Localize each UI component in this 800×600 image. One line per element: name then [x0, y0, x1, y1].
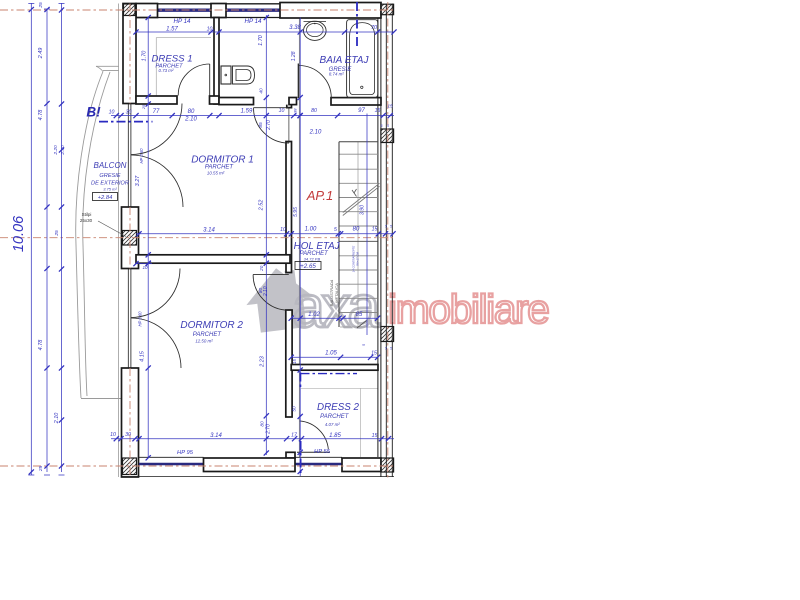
svg-text:2.10: 2.10: [184, 117, 197, 123]
svg-text:10.06: 10.06: [11, 215, 27, 252]
svg-text:5: 5: [390, 347, 392, 351]
svg-text:4.78: 4.78: [38, 339, 44, 351]
svg-text:15: 15: [292, 359, 297, 364]
svg-text:AP.1: AP.1: [306, 188, 334, 203]
svg-text:2.10: 2.10: [54, 412, 60, 425]
svg-text:8.74 m²: 8.74 m²: [329, 72, 344, 77]
svg-text:20: 20: [259, 265, 264, 272]
svg-text:HP 14: HP 14: [245, 18, 263, 25]
svg-text:12.50 m²: 12.50 m²: [195, 339, 213, 344]
svg-text:4.15: 4.15: [140, 350, 146, 362]
svg-text:15: 15: [372, 433, 378, 439]
svg-text:HP 0.60: HP 0.60: [139, 148, 144, 164]
svg-text:HP 95: HP 95: [177, 450, 194, 456]
svg-text:25: 25: [38, 466, 44, 473]
svg-text:HP 55: HP 55: [314, 449, 331, 455]
svg-text:3.75 m²: 3.75 m²: [103, 187, 117, 192]
svg-text:1.02: 1.02: [308, 312, 320, 318]
svg-text:2.70: 2.70: [266, 120, 272, 131]
svg-text:2.23: 2.23: [260, 355, 266, 368]
svg-text:DRESS 2: DRESS 2: [317, 402, 359, 413]
svg-text:34.72 PB: 34.72 PB: [304, 256, 321, 261]
svg-text:5: 5: [385, 225, 387, 229]
svg-text:85: 85: [258, 122, 264, 128]
svg-text:15: 15: [375, 108, 381, 114]
svg-text:2.10: 2.10: [263, 286, 269, 297]
svg-text:1.38: 1.38: [292, 108, 297, 117]
svg-text:97: 97: [358, 108, 365, 114]
svg-text:85: 85: [356, 312, 363, 318]
svg-text:1.57: 1.57: [166, 26, 178, 32]
svg-text:5: 5: [385, 347, 387, 351]
svg-text:+2.84: +2.84: [98, 195, 113, 201]
svg-text:Stilpi: Stilpi: [82, 212, 92, 217]
svg-text:PARCHET: PARCHET: [193, 332, 223, 338]
svg-text:1.05: 1.05: [325, 351, 337, 357]
svg-text:3.14: 3.14: [203, 228, 215, 234]
svg-text:METALICA: METALICA: [334, 283, 339, 303]
svg-text:HP 0.60: HP 0.60: [138, 311, 143, 327]
svg-text:10: 10: [142, 265, 148, 270]
svg-text:4.07 m²: 4.07 m²: [325, 422, 340, 427]
svg-text:70: 70: [371, 25, 378, 31]
svg-text:10: 10: [109, 110, 115, 116]
svg-text:30: 30: [125, 432, 131, 438]
svg-text:25: 25: [38, 2, 44, 9]
svg-text:2.40: 2.40: [60, 145, 66, 156]
svg-text:40: 40: [259, 88, 265, 94]
svg-text:3.14: 3.14: [210, 433, 222, 439]
svg-text:50: 50: [291, 406, 297, 412]
svg-text:5: 5: [390, 225, 392, 229]
svg-text:PARCHET: PARCHET: [320, 414, 350, 420]
svg-text:3.90: 3.90: [360, 205, 366, 215]
svg-text:5: 5: [362, 344, 366, 346]
svg-text:GRESIE: GRESIE: [99, 173, 120, 179]
svg-text:5: 5: [387, 124, 389, 128]
svg-text:25x30: 25x30: [80, 218, 93, 223]
svg-text:25: 25: [54, 230, 60, 237]
svg-text:0.73 m²: 0.73 m²: [159, 68, 174, 73]
svg-text:imobiliare: imobiliare: [388, 286, 548, 332]
svg-text:77: 77: [153, 109, 160, 115]
svg-text:9H=17 CM: 9H=17 CM: [355, 252, 359, 266]
svg-text:5: 5: [334, 227, 337, 233]
svg-text:2.20: 2.20: [53, 145, 59, 156]
svg-text:15: 15: [371, 351, 377, 357]
svg-text:5: 5: [381, 124, 383, 128]
svg-text:1.85: 1.85: [329, 433, 341, 439]
svg-text:3.38: 3.38: [289, 25, 301, 31]
svg-text:2.49: 2.49: [38, 48, 44, 60]
svg-text:2.70: 2.70: [266, 424, 272, 435]
svg-text:10: 10: [207, 26, 213, 32]
svg-text:1.59: 1.59: [241, 109, 253, 115]
svg-text:25: 25: [142, 104, 146, 110]
svg-text:HP 14: HP 14: [174, 18, 192, 25]
svg-text:10: 10: [279, 108, 285, 114]
svg-text:1.70: 1.70: [258, 34, 264, 46]
svg-text:2.10: 2.10: [309, 130, 322, 136]
svg-text:BALCON: BALCON: [94, 161, 127, 170]
svg-text:15: 15: [372, 227, 378, 233]
svg-text:BAIA ETAJ: BAIA ETAJ: [320, 55, 370, 66]
svg-text:5.95: 5.95: [293, 207, 299, 217]
svg-text:15: 15: [387, 104, 393, 110]
svg-text:10: 10: [110, 432, 116, 438]
svg-text:1.70: 1.70: [141, 50, 147, 62]
svg-text:2.52: 2.52: [258, 200, 264, 212]
svg-text:30: 30: [126, 110, 132, 116]
svg-text:+2.65: +2.65: [300, 263, 316, 270]
svg-text:10.55 m²: 10.55 m²: [207, 171, 225, 176]
svg-text:3.27: 3.27: [135, 175, 141, 187]
svg-text:B!: B!: [86, 105, 101, 120]
svg-text:1.28: 1.28: [291, 51, 297, 61]
svg-text:80: 80: [311, 108, 317, 114]
svg-text:80: 80: [353, 227, 360, 233]
svg-text:4.78: 4.78: [38, 109, 44, 121]
svg-text:DORMITOR 2: DORMITOR 2: [180, 320, 243, 331]
svg-text:80: 80: [188, 109, 195, 115]
svg-text:PARCHET: PARCHET: [205, 164, 235, 170]
svg-text:1.00: 1.00: [305, 227, 317, 233]
svg-text:10: 10: [280, 227, 286, 233]
